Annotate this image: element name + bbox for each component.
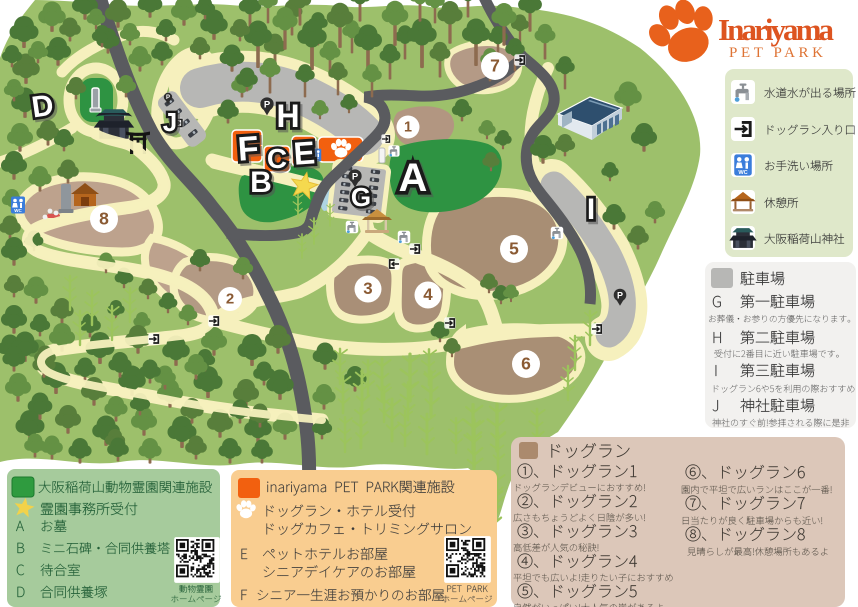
svg-text:E: E — [292, 134, 316, 171]
svg-text:7: 7 — [490, 55, 500, 75]
svg-text:8: 8 — [99, 208, 109, 228]
svg-text:6: 6 — [521, 353, 531, 373]
svg-text:F: F — [237, 129, 260, 168]
svg-text:A: A — [399, 156, 428, 200]
svg-text:3: 3 — [363, 279, 372, 298]
svg-text:G: G — [351, 182, 371, 212]
svg-text:I: I — [587, 193, 595, 226]
svg-text:J: J — [163, 107, 177, 137]
svg-text:4: 4 — [423, 285, 433, 304]
svg-text:H: H — [276, 98, 299, 134]
svg-text:B: B — [250, 166, 272, 199]
svg-text:PET PARK: PET PARK — [729, 45, 826, 61]
svg-text:D: D — [30, 89, 56, 125]
svg-text:Inariyama: Inariyama — [718, 12, 835, 47]
svg-text:5: 5 — [509, 238, 519, 258]
svg-text:2: 2 — [226, 291, 234, 308]
svg-text:1: 1 — [404, 119, 412, 135]
